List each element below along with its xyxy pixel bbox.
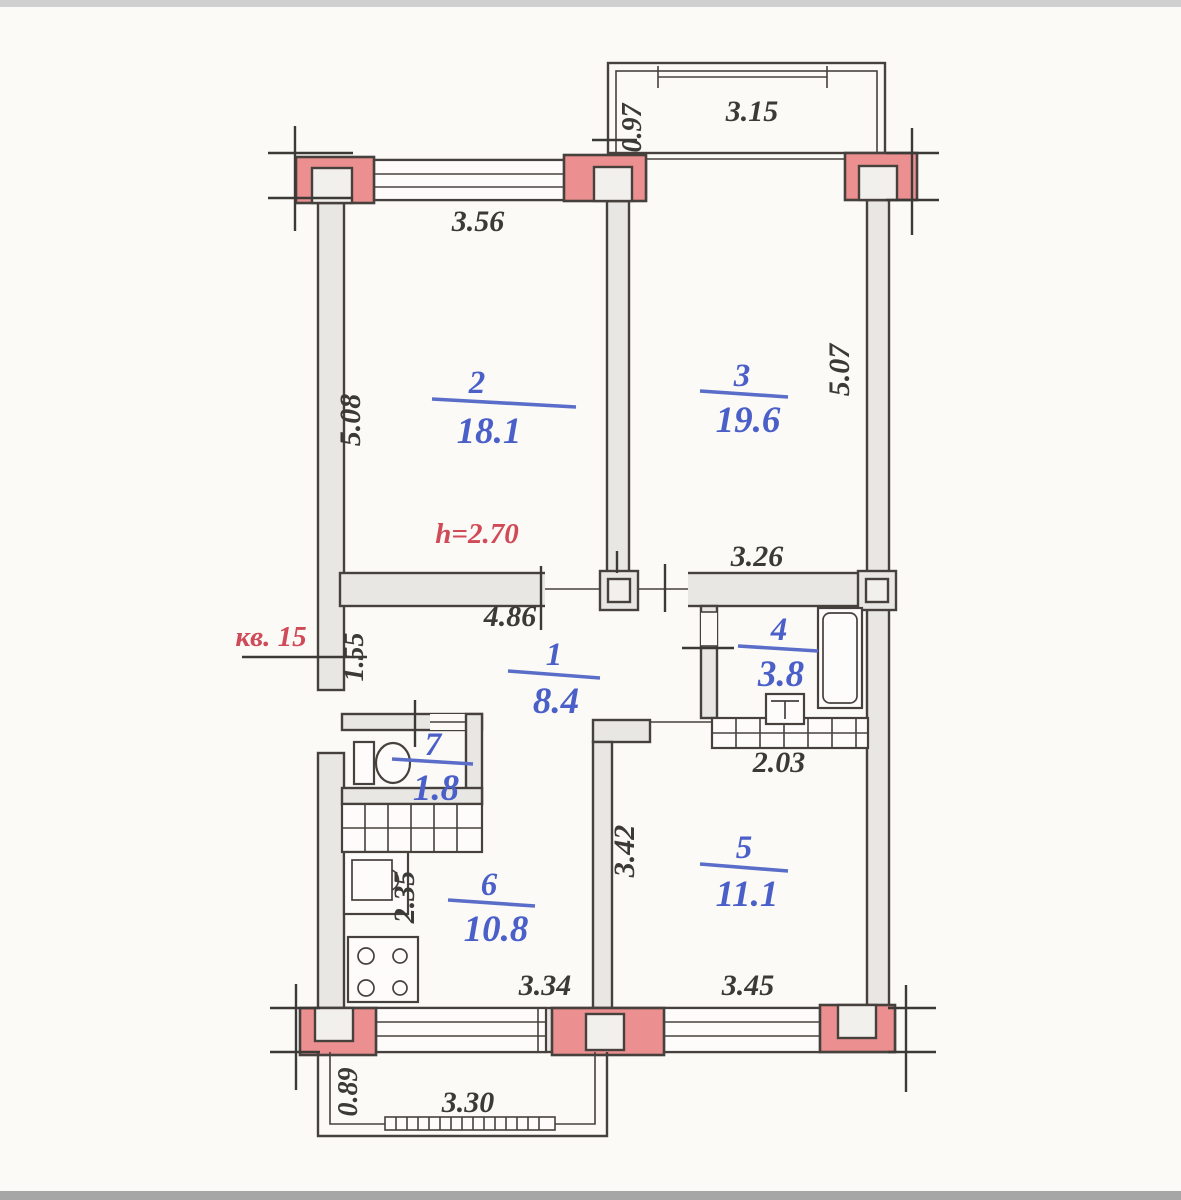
wall-right-lower xyxy=(867,606,889,1008)
room-6-area: 10.8 xyxy=(464,909,529,950)
room-2-label: 2 18.1 xyxy=(432,365,576,452)
room-7-area: 1.8 xyxy=(413,768,459,809)
wall-hall-room5 xyxy=(593,720,650,742)
ceiling-height-label: h=2.70 xyxy=(435,518,518,550)
dim-closet-width: 2.03 xyxy=(752,746,806,779)
washbasin-icon xyxy=(766,694,804,724)
room-2-number: 2 xyxy=(468,365,486,401)
scan-edge-bottom xyxy=(0,1191,1181,1200)
toilet-icon xyxy=(354,742,410,784)
dim-entry-side: 1.55 xyxy=(339,633,370,682)
scan-edge-top xyxy=(0,0,1181,7)
dim-right-side: 5.07 xyxy=(823,343,856,397)
bathtub-icon xyxy=(818,608,862,708)
room-1-number: 1 xyxy=(546,637,563,673)
closet-under-wc xyxy=(342,804,482,852)
room-6-number: 6 xyxy=(481,867,498,903)
window-room5-bottom xyxy=(664,1008,820,1052)
room-3-number: 3 xyxy=(733,358,751,394)
dim-room3-bottom: 3.26 xyxy=(730,540,784,573)
room-3-area: 19.6 xyxy=(716,400,781,441)
window-top-room2 xyxy=(374,160,564,200)
room-2-area: 18.1 xyxy=(457,411,522,452)
dim-kitchen-side: 2.35 xyxy=(388,871,421,925)
room-6-label: 6 10.8 xyxy=(448,867,535,950)
floor-plan-scan: 3.56 3.15 0.97 5.08 5.07 3.26 4.86 1.55 … xyxy=(0,0,1181,1200)
pilaster-bottom-middle xyxy=(552,1008,664,1055)
room-4-area: 3.8 xyxy=(757,654,804,695)
floor-plan-drawing: 3.56 3.15 0.97 5.08 5.07 3.26 4.86 1.55 … xyxy=(0,0,1181,1200)
dim-hall-top: 4.86 xyxy=(483,600,537,633)
dim-top-window: 3.56 xyxy=(451,205,505,238)
room-5-area: 11.1 xyxy=(716,874,779,915)
dim-top-balcony-depth: 0.97 xyxy=(617,103,648,153)
window-kitchen-bottom xyxy=(376,1008,546,1052)
room-4-number: 4 xyxy=(770,612,788,648)
pilaster-bottom-right xyxy=(820,1005,895,1052)
pilaster-top-right xyxy=(845,153,917,200)
pilaster-top-left xyxy=(296,157,374,203)
pilaster-bottom-left xyxy=(300,1008,376,1055)
apartment-number-label: кв. 15 xyxy=(235,621,306,653)
room-1-area: 8.4 xyxy=(533,681,579,722)
dim-kitchen-bottom: 3.34 xyxy=(518,969,572,1002)
wall-room2-room3 xyxy=(607,201,629,572)
dim-left-side: 5.08 xyxy=(334,394,367,447)
room-5-label: 5 11.1 xyxy=(700,830,788,915)
pilaster-top-middle xyxy=(564,155,646,201)
stove-icon xyxy=(348,937,418,1002)
room-4-label: 4 3.8 xyxy=(738,612,818,695)
room-3-label: 3 19.6 xyxy=(700,358,788,441)
dim-top-balcony-width: 3.15 xyxy=(725,95,779,128)
dim-bottom-balcony-depth: 0.89 xyxy=(333,1068,364,1117)
room-1-label: 1 8.4 xyxy=(508,637,600,722)
dim-room5-bottom: 3.45 xyxy=(721,969,775,1002)
dim-room5-side: 3.42 xyxy=(608,825,641,879)
wall-right-upper xyxy=(867,200,889,573)
room-5-number: 5 xyxy=(736,830,753,866)
dim-bottom-balcony-width: 3.30 xyxy=(441,1086,495,1119)
room-7-number: 7 xyxy=(425,727,443,763)
